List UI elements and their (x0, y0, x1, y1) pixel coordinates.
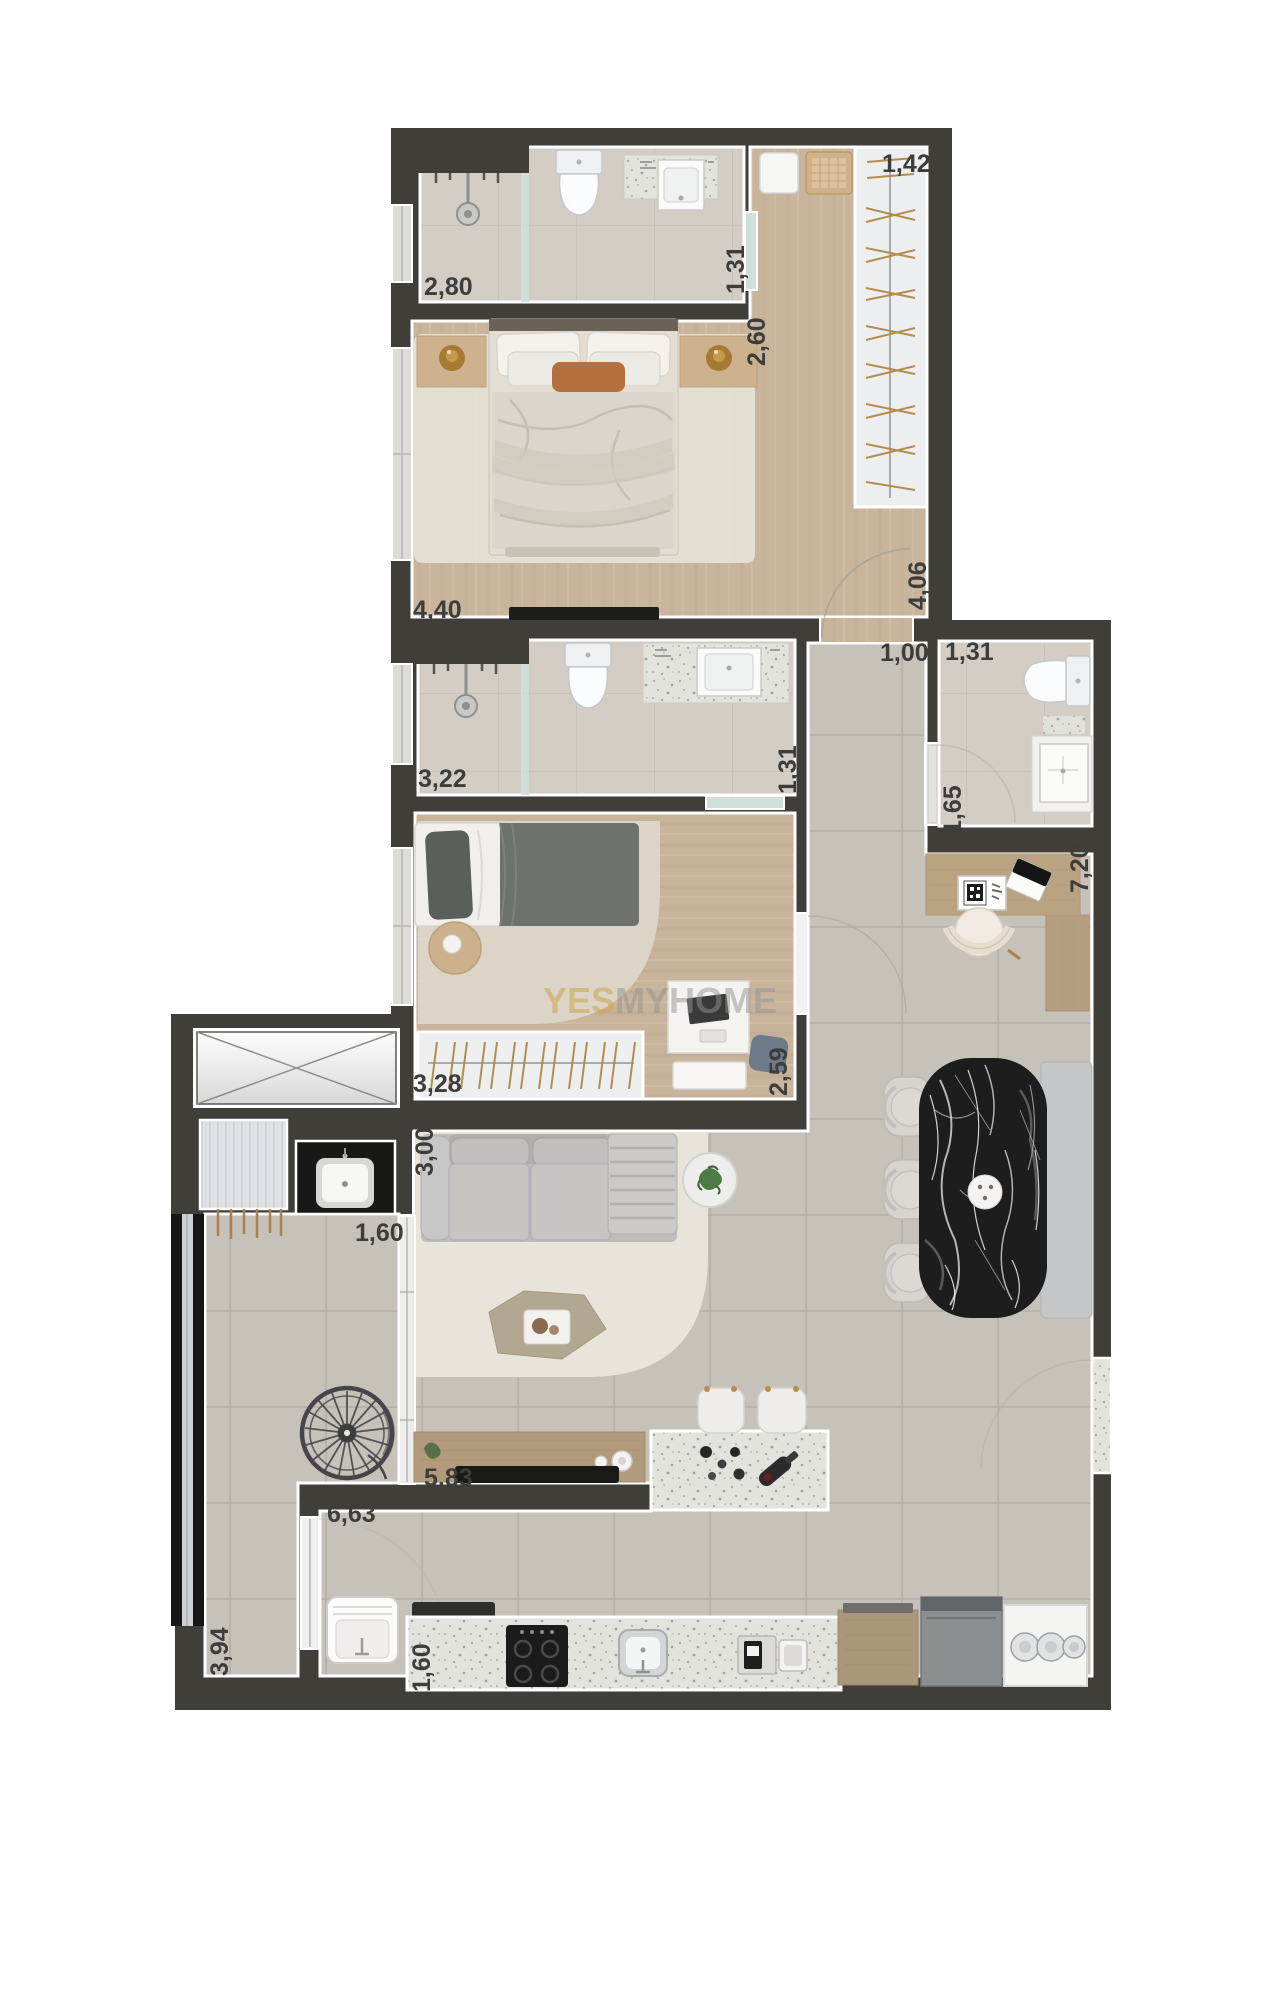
svg-text:2,80: 2,80 (424, 273, 473, 301)
svg-text:1,42: 1,42 (882, 150, 931, 178)
svg-text:2,59: 2,59 (765, 1047, 793, 1096)
svg-text:1,00: 1,00 (880, 639, 929, 667)
svg-text:7,20: 7,20 (1066, 844, 1094, 893)
svg-text:1,60: 1,60 (355, 1219, 404, 1247)
svg-text:3,28: 3,28 (413, 1070, 462, 1098)
svg-text:1,31: 1,31 (774, 745, 802, 794)
svg-text:1,31: 1,31 (945, 638, 994, 666)
svg-text:1,31: 1,31 (722, 245, 750, 294)
svg-text:4,06: 4,06 (904, 561, 932, 610)
svg-text:4,40: 4,40 (413, 596, 462, 624)
svg-text:1,60: 1,60 (408, 1643, 436, 1692)
svg-text:5,83: 5,83 (424, 1464, 473, 1492)
svg-text:2,60: 2,60 (743, 317, 771, 366)
svg-text:6,63: 6,63 (327, 1500, 376, 1528)
svg-text:3,00: 3,00 (411, 1127, 439, 1176)
svg-text:3,94: 3,94 (206, 1627, 234, 1676)
svg-text:YESMYHOME: YESMYHOME (543, 980, 777, 1021)
svg-text:1,65: 1,65 (939, 785, 967, 834)
svg-text:3,22: 3,22 (418, 765, 467, 793)
